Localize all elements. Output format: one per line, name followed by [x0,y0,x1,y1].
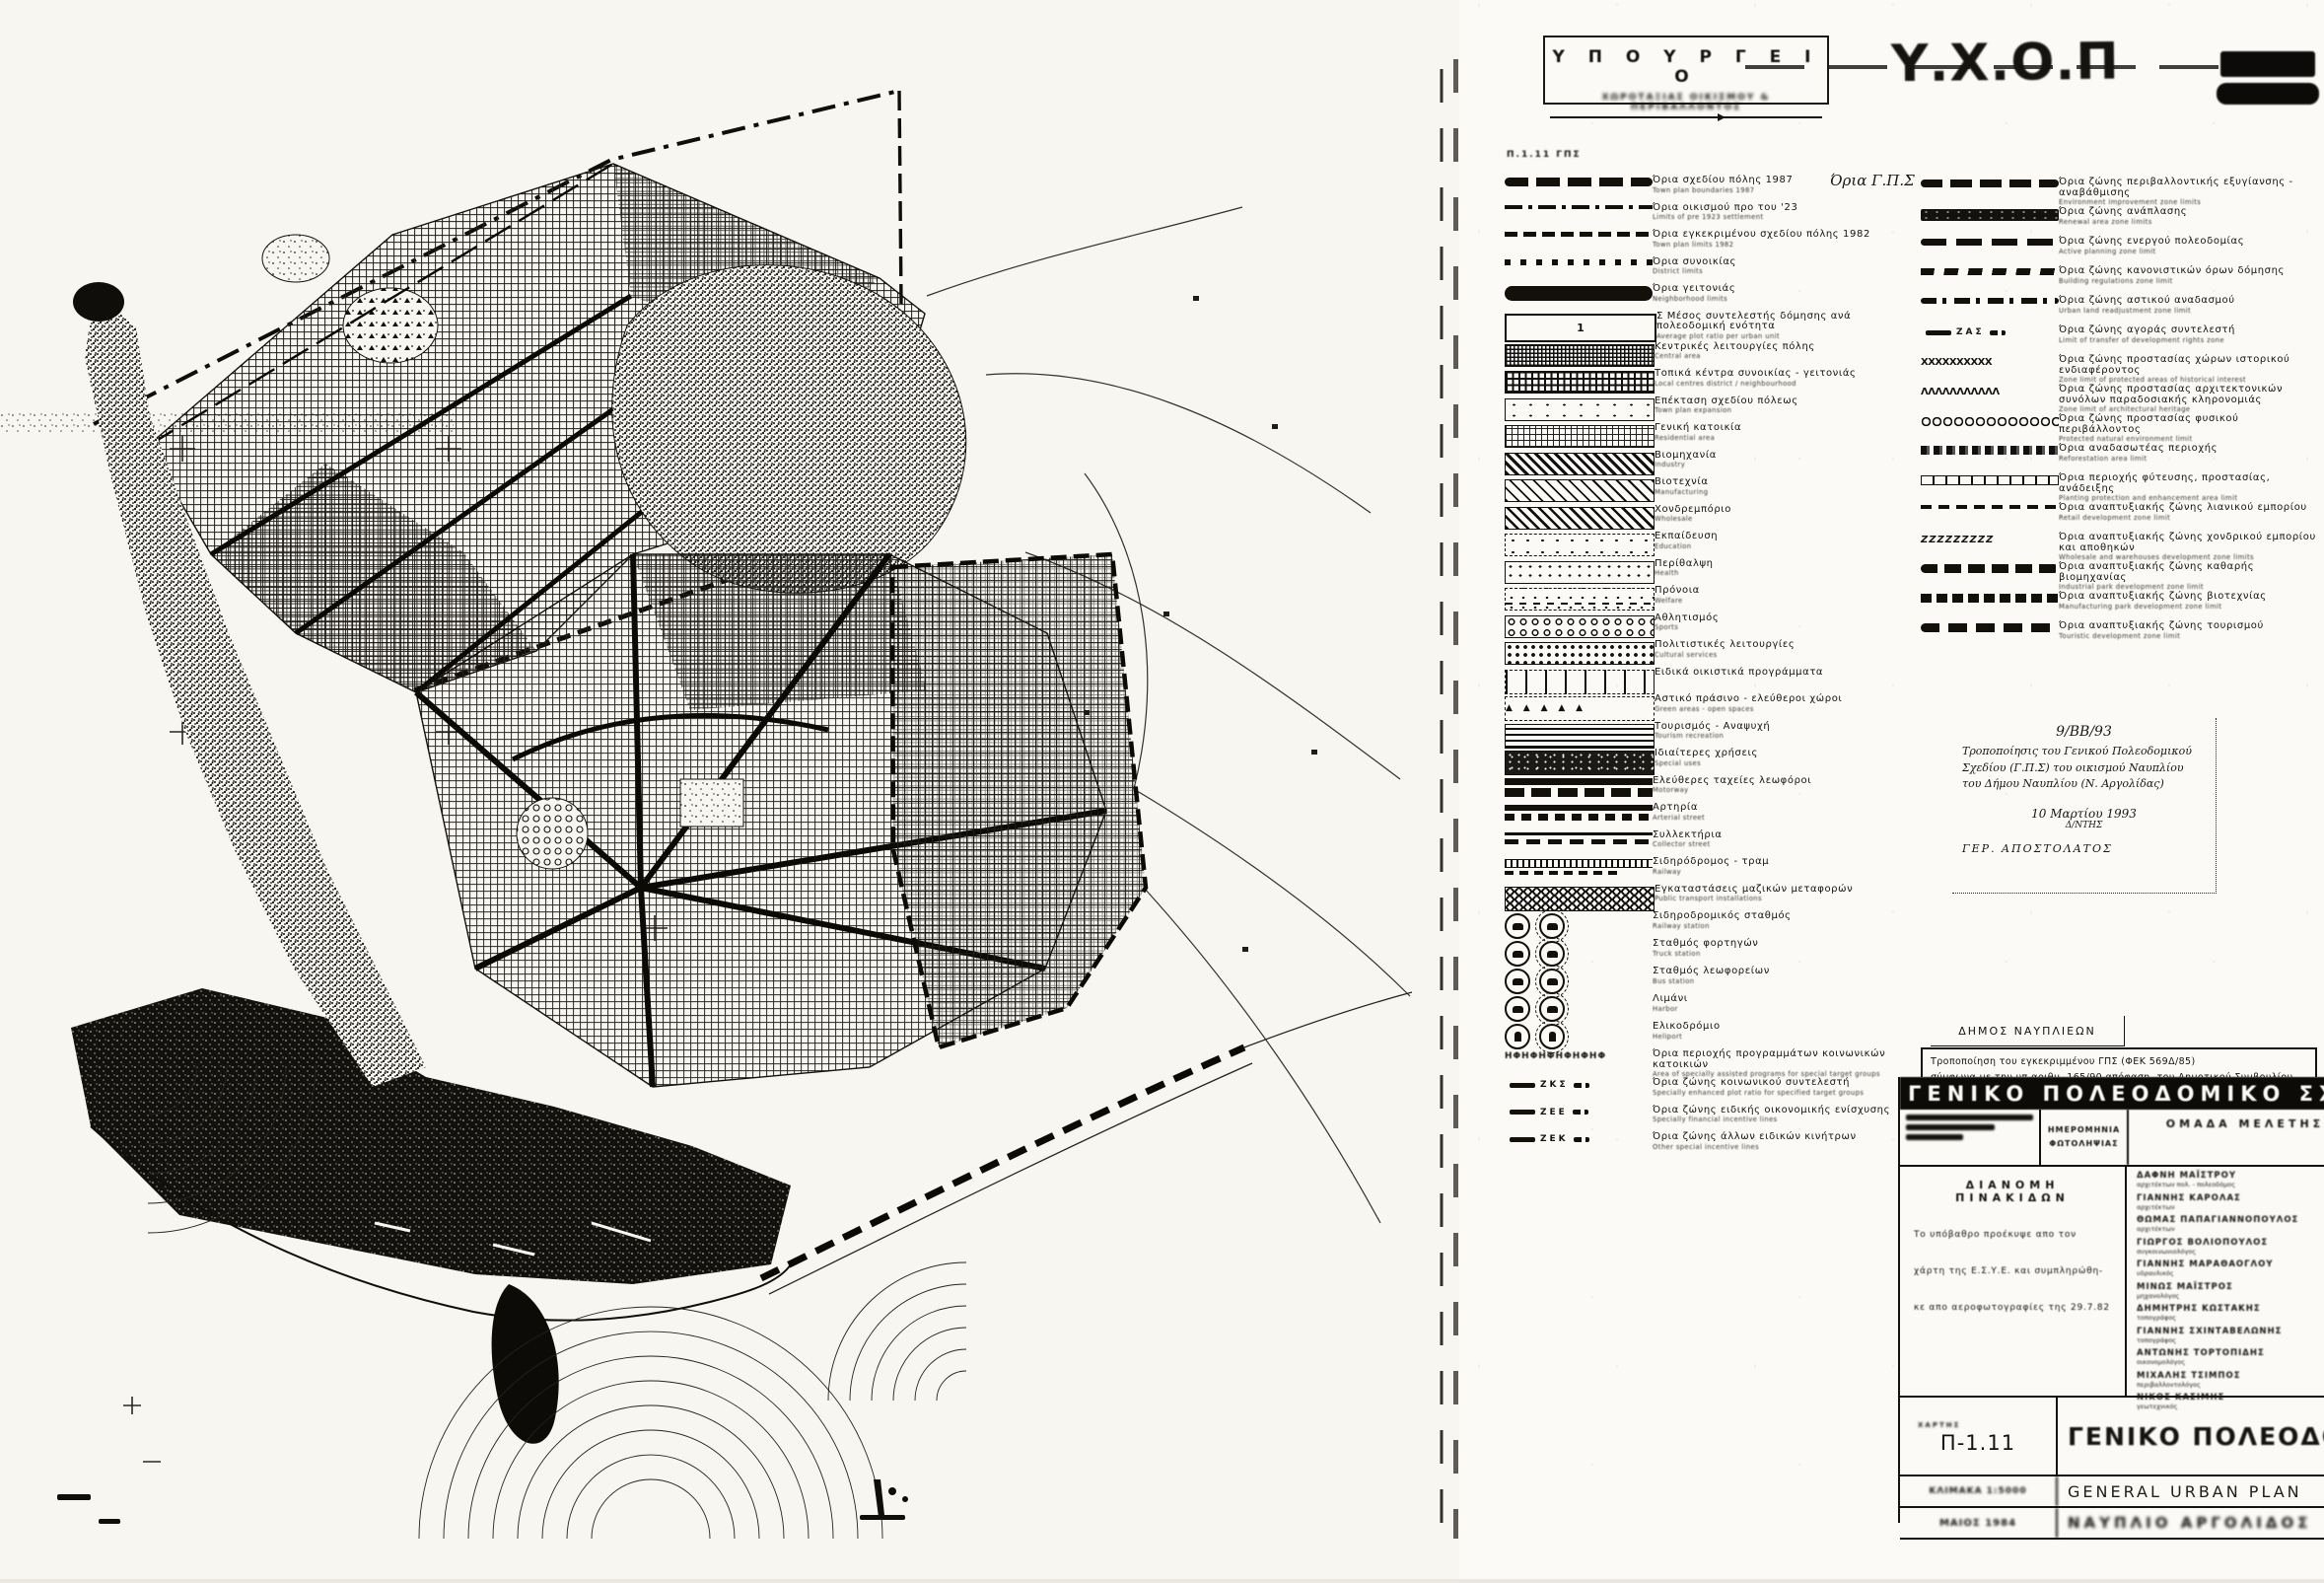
legend-item-health: Περίθαλψη Health [1505,559,1914,587]
legend-item-public-transport-installations: Εγκαταστάσεις μαζικών μεταφορών Public t… [1505,885,1914,912]
education-icon [1505,534,1655,556]
social-housing-area-icon: ΗΦΗΦΗΦΗΦΗΦΗΦ [1505,1051,1653,1061]
truck-station-icon [1505,941,1653,967]
legend-label-greek: Γενική κατοικία [1655,423,1914,434]
note-reference: 9/ΒΒ/93 [1962,724,2206,740]
legend-label-english: Manufacturing park development zone limi… [2059,604,2324,611]
legend-label-greek: Όρια ζώνης κανονιστικών όρων δόμησης [2059,266,2324,277]
legend-label-greek: Όρια ζώνης ανάπλασης [2059,207,2324,218]
legend-item-railway-line: Σιδηρόδρομος - τραμ Railway [1505,857,1914,885]
photo-date-header: ΗΜΕΡΟΜΗΝΙΑ ΦΩΤΟΛΗΨΙΑΣ [2041,1110,2129,1165]
industrial-park-zone-icon [1921,564,2059,573]
legend-label-greek: Σταθμός λεωφορείων [1653,967,1914,977]
legend-label-english: Harbor [1653,1006,1914,1013]
town-plan-limits-1982-icon [1505,232,1653,237]
team-member-name: ΑΝΤΩΝΗΣ ΤΟΡΤΟΠΙΔΗΣ [2137,1348,2324,1358]
legend-label-greek: Όρια γειτονιάς [1653,284,1914,295]
legend-label-english: Railway station [1653,923,1914,930]
legend-item-retail-development-zone: Όρια αναπτυξιακής ζώνης λιανικού εμπορίο… [1921,503,2324,533]
legend-label-english: Town plan expansion [1655,407,1914,414]
legend-label-greek: Όρια αναπτυξιακής ζώνης χονδρικού εμπορί… [2059,533,2324,553]
railway-line-icon [1505,859,1653,875]
renewal-zone-icon [1921,209,2059,221]
team-member-name: ΓΙΑΝΝΗΣ ΣΧΙΝΤΑΒΕΛΩΝΗΣ [2137,1327,2324,1336]
scan-smudges [57,1479,908,1524]
bus-station-icon [1505,969,1653,994]
collector-street-icon [1505,832,1653,844]
legend-item-railway-station: Σιδηροδρομικός σταθμός Railway station [1505,911,1914,939]
map-number-cell: ΧΑΡΤΗΣ Π-1.11 [1900,1398,2058,1475]
legend-item-collector-street: Συλλεκτήρια Collector street [1505,830,1914,858]
district-east [892,554,1146,1047]
team-member: ΔΗΜΗΤΡΗΣ ΚΩΣΤΑΚΗΣ τοπογράφος [2137,1304,2324,1322]
harbor-circle-icon [1505,996,1530,1022]
legend-sheet: Υ Π Ο Υ Ρ Γ Ε Ι Ο ΧΩΡΟΤΑΞΙΑΣ ΟΙΚΙΣΜΟΥ & … [1459,0,2324,1579]
legend-label-english: Residential area [1655,435,1914,442]
environmental-improvement-zone-icon [1921,180,2059,187]
legend-item-reforestation-area: Όρια αναδασωτέας περιοχής Reforestation … [1921,444,2324,473]
legend-label-english: Collector street [1653,841,1914,848]
legend-item-wholesale: Χονδρεμπόριο Wholesale [1505,505,1914,533]
cultural-services-icon [1505,642,1655,665]
sheet-fold-line [1453,59,1458,1539]
sports-icon [1505,615,1655,638]
legend-item-architectural-heritage-zone: ΛΛΛΛΛΛΛΛΛΛΛ Όρια ζώνης προστασίας αρχιτε… [1921,385,2324,414]
legend-item-tourism-recreation: Τουρισμός - Αναψυχή Tourism recreation [1505,722,1914,750]
heliport-circle-icon [1539,1024,1565,1049]
date-cell: ΜΑΙΟΣ 1984 [1900,1508,2058,1538]
legend-item-town-plan-boundaries-1987: Όρια σχεδίου πόλης 1987 Town plan bounda… [1505,176,1914,203]
heliport-icon [1505,1024,1653,1049]
legend-label-greek: Χονδρεμπόριο [1655,505,1914,516]
legend-label-english: Building regulations zone limit [2059,278,2324,285]
team-member-name: ΓΙΑΝΝΗΣ ΜΑΡΑΘΑΟΓΛΟΥ [2137,1259,2324,1269]
legend-column-right: Όρια ζώνης περιβαλλοντικής εξυγίανσης - … [1921,178,2324,651]
green-open-spaces-icon: ▲ ▲ ▲ ▲ ▲ [1505,696,1655,721]
distribution-title: ΔΙΑΝΟΜΗ ΠΙΝΑΚΙΔΩΝ [1914,1179,2111,1204]
title-band: ΓΕΝΙΚΟ ΠΟΛΕΟΔΟΜΙΚΟ ΣΧΕΔΙΟ [1900,1077,2324,1110]
railway-station-circle-icon [1539,913,1565,939]
municipality-label: ΔΗΜΟΣ ΝΑΥΠΛΙΕΩΝ [1931,1016,2125,1046]
heliport-circle-icon [1505,1024,1530,1049]
manufacturing-icon [1505,479,1655,502]
map-sheet [0,0,1459,1579]
neighborhood-limits-icon [1505,286,1653,301]
legend-label-greek: Πολιτιστικές λειτουργίες [1655,640,1914,651]
legend-label-greek: Σιδηροδρομικός σταθμός [1653,911,1914,922]
legend-label-greek: Ειδικά οικιστικά προγράμματα [1655,668,1914,679]
legend-item-renewal-zone: Όρια ζώνης ανάπλασης Renewal area zone l… [1921,207,2324,237]
basemap-info-cell-illegible [1900,1110,2041,1165]
team-member: ΓΙΑΝΝΗΣ ΚΑΡΟΛΑΣ αρχιτέκτων [2137,1193,2324,1211]
harbor-circle-icon [1539,996,1565,1022]
wholesale-warehouse-zone-icon: ΖΖΖΖΖΖΖΖΖ [1921,535,2059,545]
legend-item-bus-station: Σταθμός λεωφορείων Bus station [1505,967,1914,994]
legend-label-greek: Όρια περιοχής φύτευσης, προστασίας, ανάδ… [2059,473,2324,494]
legend-label-english: Limits of pre 1923 settlement [1653,214,1914,221]
legend-item-special-financial-zone: ΖΕΕ Όρια ζώνης ειδικής οικονομικής ενίσχ… [1505,1106,1914,1133]
legend-item-wholesale-warehouse-zone: ΖΖΖΖΖΖΖΖΖ Όρια αναπτυξιακής ζώνης χονδρι… [1921,533,2324,562]
team-member-role: αρχιτέκτων [2137,1225,2324,1233]
other-incentive-zone-icon: ΖΕΚ [1505,1134,1653,1144]
note-role: Δ/ΝΤΗΣ [1962,821,2206,830]
legend-label-greek: Όρια αναδασωτέας περιοχής [2059,444,2324,455]
legend-item-social-plot-ratio-zone: ΖΚΣ Όρια ζώνης κοινωνικού συντελεστή Spe… [1505,1078,1914,1106]
team-member: ΜΙΝΩΣ ΜΑΪΣΤΡΟΣ μηχανολόγος [2137,1282,2324,1300]
legend-label-greek: Όρια αναπτυξιακής ζώνης τουρισμού [2059,621,2324,632]
ministry-header-box: Υ Π Ο Υ Ρ Γ Ε Ι Ο ΧΩΡΟΤΑΞΙΑΣ ΟΙΚΙΣΜΟΥ & … [1543,36,1829,105]
legend-item-district-limits: Όρια συνοικίας District limits [1505,257,1914,285]
scanned-urban-plan-document: { "ministry_box": { "title": "Υ Π Ο Υ Ρ … [0,0,2324,1579]
legend-item-central-area: Κεντρικές λειτουργίες πόλης Central area [1505,342,1914,370]
central-area-icon [1505,344,1655,367]
legend-label-greek: Περίθαλψη [1655,559,1914,570]
legend-label-english: Other special incentive lines [1653,1144,1914,1151]
legend-label-greek: Σιδηρόδρομος - τραμ [1653,857,1914,868]
team-member-role: οικονομολόγος [2137,1358,2324,1366]
legend-label-greek: Σ Μέσος συντελεστής δόμησης ανά πολεοδομ… [1656,312,1914,332]
legend-item-other-incentive-zone: ΖΕΚ Όρια ζώνης άλλων ειδικών κινήτρων Ot… [1505,1132,1914,1160]
legend-label-greek: Όρια ζώνης αστικού αναδασμού [2059,296,2324,307]
team-member-role: μηχανολόγος [2137,1292,2324,1300]
legend-label-english: Heliport [1653,1034,1914,1041]
legend-label-greek: Όρια ζώνης άλλων ειδικών κινήτρων [1653,1132,1914,1143]
note-signature: ΓΕΡ. ΑΠΟΣΤΟΛΑΤΟΣ [1962,842,2206,855]
urban-land-readjustment-zone-icon [1921,298,2059,304]
legend-label-greek: Όρια εγκεκριμένου σχεδίου πόλης 1982 [1653,230,1914,241]
wholesale-icon [1505,507,1655,530]
team-member-role: συγκοινωνιολόγος [2137,1248,2324,1256]
legend-label-english: Green areas - open spaces [1655,706,1914,713]
team-member: ΘΩΜΑΣ ΠΑΠΑΓΙΑΝΝΟΠΟΥΛΟΣ αρχιτέκτων [2137,1215,2324,1233]
legend-item-pre-1923-settlement: Όρια οικισμού προ του '23 Limits of pre … [1505,203,1914,231]
legend-label-greek: Ελεύθερες ταχείες λεωφόροι [1653,776,1914,787]
legend-item-active-planning-zone: Όρια ζώνης ενεργού πολεοδομίας Active pl… [1921,237,2324,266]
study-team-list: ΔΑΦΝΗ ΜΑΪΣΤΡΟΥ αρχιτέκτων πολ. - πολεοδό… [2127,1167,2324,1396]
team-header: ΟΜΑΔΑ ΜΕΛΕΤΗΣ [2129,1110,2324,1165]
motorway-icon [1505,778,1653,797]
reforestation-area-icon [1921,446,2059,455]
legend-label-greek: Όρια αναπτυξιακής ζώνης καθαρής βιομηχαν… [2059,562,2324,583]
development-rights-zone-icon: ΖΑΣ [1921,327,2059,337]
distribution-line1: Το υπόβαθρο προέκυψε απο τον [1914,1230,2111,1241]
legend-item-town-plan-limits-1982: Όρια εγκεκριμένου σχεδίου πόλης 1982 Tow… [1505,230,1914,257]
town-plan-expansion-icon [1505,398,1655,421]
legend-item-sports: Αθλητισμός Sports [1505,613,1914,641]
legend-label-greek: Βιομηχανία [1655,451,1914,462]
place-name-cell: ΝΑΥΠΛΙΟ ΑΡΓΟΛΙΔΟΣ [2058,1508,2324,1538]
ministry-subtitle: ΧΩΡΟΤΑΞΙΑΣ ΟΙΚΙΣΜΟΥ & ΠΕΡΙΒΑΛΛΟΝΤΟΣ [1545,93,1827,112]
tourism-recreation-icon [1505,724,1655,749]
handwritten-amendment-note: 9/ΒΒ/93 Τροποποίησις του Γενικού Πολεοδο… [1952,718,2217,894]
railway-station-icon [1505,913,1653,939]
legend-label-greek: Όρια ζώνης προστασίας φυσικού περιβάλλον… [2059,414,2324,435]
team-member-name: ΓΙΩΡΓΟΣ ΒΟΛΙΟΠΟΥΛΟΣ [2137,1238,2324,1248]
truck-station-circle-icon [1539,941,1565,967]
legend-label-english: Tourism recreation [1655,733,1914,740]
average-plot-ratio-icon: 1 [1505,314,1656,342]
legend-item-special-housing-programs: Ειδικά οικιστικά προγράμματα [1505,668,1914,695]
harbor-icon [1505,996,1653,1022]
legend-label-greek: Σταθμός φορτηγών [1653,939,1914,950]
legend-item-planting-protection-area: Όρια περιοχής φύτευσης, προστασίας, ανάδ… [1921,473,2324,503]
legend-label-english: Bus station [1653,978,1914,985]
health-icon [1505,561,1655,584]
railway-station-circle-icon [1505,913,1530,939]
team-member: ΓΙΑΝΝΗΣ ΣΧΙΝΤΑΒΕΛΩΝΗΣ τοπογράφος [2137,1327,2324,1344]
legend-label-english: Motorway [1653,787,1914,794]
legend-label-greek: Τοπικά κέντρα συνοικίας - γειτονιάς [1655,369,1914,380]
legend-label-english: Arterial street [1653,815,1914,822]
legend-item-green-open-spaces: ▲ ▲ ▲ ▲ ▲ Αστικό πράσινο - ελεύθεροι χώρ… [1505,694,1914,722]
retail-development-zone-icon [1921,505,2059,509]
legend-label-english: Neighborhood limits [1653,296,1914,303]
legend-label-greek: Όρια οικισμού προ του '23 [1653,203,1914,214]
architectural-heritage-zone-icon: ΛΛΛΛΛΛΛΛΛΛΛ [1921,387,2059,397]
building-regulation-zone-icon [1921,268,2059,275]
legend-label-english: Manufacturing [1655,489,1914,496]
town-plan-boundaries-1987-icon [1505,178,1653,186]
team-member-name: ΓΙΑΝΝΗΣ ΚΑΡΟΛΑΣ [2137,1193,2324,1203]
legend-item-industrial-park-zone: Όρια αναπτυξιακής ζώνης καθαρής βιομηχαν… [1921,562,2324,592]
legend-item-special-uses: Ιδιαίτερες χρήσεις Special uses [1505,749,1914,776]
legend-item-industry: Βιομηχανία Industry [1505,451,1914,478]
amendment-line1: Τροποποίηση του εγκεκριμμένου ΓΠΣ (ΦΕΚ 5… [1931,1054,2307,1070]
legend-item-harbor: Λιμάνι Harbor [1505,994,1914,1022]
social-plot-ratio-zone-icon: ΖΚΣ [1505,1080,1653,1090]
legend-item-arterial-street: Αρτηρία Arterial street [1505,803,1914,830]
distribution-line2: χάρτη της Ε.Σ.Υ.Ε. και συμπληρώθη- [1914,1266,2111,1277]
manufacturing-park-zone-icon [1921,594,2059,603]
plan-title-english: GENERAL URBAN PLAN [2058,1476,2324,1506]
historical-interest-zone-icon: ΧΧΧΧΧΧΧΧΧΧ [1921,357,2059,368]
distribution-cell: ΔΙΑΝΟΜΗ ΠΙΝΑΚΙΔΩΝ Το υπόβαθρο προέκυψε α… [1900,1167,2127,1396]
legend-label-greek: Αθλητισμός [1655,613,1914,624]
legend-label-greek: Όρια ζώνης προστασίας αρχιτεκτονικών συν… [2059,385,2324,405]
legend-item-town-plan-expansion: Επέκταση σχεδίου πόλεως Town plan expans… [1505,396,1914,424]
team-member: ΑΝΤΩΝΗΣ ΤΟΡΤΟΠΙΔΗΣ οικονομολόγος [2137,1348,2324,1366]
legend-item-historical-interest-zone: ΧΧΧΧΧΧΧΧΧΧ Όρια ζώνης προστασίας χώρων ι… [1921,355,2324,385]
lagoon-pond [492,1284,559,1444]
natural-environment-zone-icon [1921,416,2059,427]
residential-area-icon [1505,425,1655,448]
legend-label-english: Local centres district / neighbourhood [1655,381,1914,388]
plan-title-greek: ΓΕΝΙΚΟ ΠΟΛΕΟΔΟΜΙΚΟ ΣΧΕΔΙΟ [2058,1398,2324,1475]
district-limits-icon [1505,259,1653,265]
legend-item-education: Εκπαίδευση Education [1505,532,1914,559]
team-member-name: ΘΩΜΑΣ ΠΑΠΑΓΙΑΝΝΟΠΟΥΛΟΣ [2137,1215,2324,1225]
legend-label-english: Special uses [1655,760,1914,767]
legend-item-natural-environment-zone: Όρια ζώνης προστασίας φυσικού περιβάλλον… [1921,414,2324,444]
special-financial-zone-icon: ΖΕΕ [1505,1108,1653,1117]
legend-label-greek: Κεντρικές λειτουργίες πόλης [1655,342,1914,353]
legend-item-building-regulation-zone: Όρια ζώνης κανονιστικών όρων δόμησης Bui… [1921,266,2324,296]
bus-station-circle-icon [1539,969,1565,994]
note-body: Τροποποίησις του Γενικού Πολεοδομικού Σχ… [1962,744,2206,793]
handwritten-annotation: Όρια Γ.Π.Σ [1830,172,1915,189]
legend-label-greek: Αρτηρία [1653,803,1914,814]
legend-item-urban-land-readjustment-zone: Όρια ζώνης αστικού αναδασμού Urban land … [1921,296,2324,325]
industry-icon [1505,453,1655,475]
scale-cell: ΚΛΙΜΑΚΑ 1:5000 [1900,1476,2058,1506]
arrow-divider [1550,116,1822,118]
team-member-name: ΔΗΜΗΤΡΗΣ ΚΩΣΤΑΚΗΣ [2137,1304,2324,1314]
legend-item-social-housing-area: ΗΦΗΦΗΦΗΦΗΦΗΦ Όρια περιοχής προγραμμάτων … [1505,1049,1914,1078]
legend-label-english: Industry [1655,462,1914,468]
welfare-icon [1505,588,1655,611]
truck-station-circle-icon [1505,941,1530,967]
legend-label-greek: Πρόνοια [1655,586,1914,597]
legend-label-english: Renewal area zone limits [2059,219,2324,226]
legend-label-english: Specially enhanced plot ratio for specif… [1653,1090,1914,1097]
legend-label-greek: Όρια ζώνης ειδικής οικονομικής ενίσχυσης [1653,1106,1914,1116]
team-member-role: υδραυλικός [2137,1269,2324,1277]
legend-item-local-centres: Τοπικά κέντρα συνοικίας - γειτονιάς Loca… [1505,369,1914,396]
legend-label-greek: Όρια ζώνης αγοράς συντελεστή [2059,325,2324,336]
legend-item-manufacturing: Βιοτεχνία Manufacturing [1505,477,1914,505]
team-member: ΓΙΩΡΓΟΣ ΒΟΛΙΟΠΟΥΛΟΣ συγκοινωνιολόγος [2137,1238,2324,1256]
team-member: ΜΙΧΑΛΗΣ ΤΣΙΜΠΟΣ περιβαλλοντολόγος [2137,1371,2324,1389]
legend-label-greek: Λιμάνι [1653,994,1914,1005]
legend-label-english: Health [1655,570,1914,577]
legend-label-greek: Όρια αναπτυξιακής ζώνης βιοτεχνίας [2059,592,2324,603]
team-member-name: ΔΑΦΝΗ ΜΑΪΣΤΡΟΥ [2137,1171,2324,1181]
team-member-role: αρχιτέκτων πολ. - πολεοδόμος [2137,1181,2324,1188]
legend-label-greek: Αστικό πράσινο - ελεύθεροι χώροι [1655,694,1914,705]
legend-label-greek: Εγκαταστάσεις μαζικών μεταφορών [1655,885,1914,896]
legend-label-english: District limits [1653,268,1914,275]
legend-label-english: Touristic development zone limit [2059,633,2324,640]
legend-item-tourist-development-zone: Όρια αναπτυξιακής ζώνης τουρισμού Touris… [1921,621,2324,651]
pre-1923-settlement-icon [1505,205,1653,209]
legend-label-english: Sports [1655,624,1914,631]
legend-label-greek: Όρια συνοικίας [1653,257,1914,268]
legend-label-greek: Όρια αναπτυξιακής ζώνης λιανικού εμπορίο… [2059,503,2324,514]
ministry-title: Υ Π Ο Υ Ρ Γ Ε Ι Ο [1545,47,1827,87]
note-date: 10 Μαρτίου 1993 [1962,807,2206,821]
legend-label-greek: Όρια ζώνης προστασίας χώρων ιστορικού εν… [2059,355,2324,376]
legend-label-greek: Βιοτεχνία [1655,477,1914,488]
legend-label-english: Education [1655,543,1914,550]
legend-label-greek: Όρια ζώνης ενεργού πολεοδομίας [2059,237,2324,248]
legend-column-left: Όρια σχεδίου πόλης 1987 Town plan bounda… [1505,176,1914,1160]
tourist-development-zone-icon [1921,623,2059,632]
legend-label-english: Central area [1655,353,1914,360]
legend-item-cultural-services: Πολιτιστικές λειτουργίες Cultural servic… [1505,640,1914,668]
illegible-text-bar [1906,1124,1995,1130]
title-block: ΓΕΝΙΚΟ ΠΟΛΕΟΔΟΜΙΚΟ ΣΧΕΔΙΟ ΗΜΕΡΟΜΗΝΙΑ ΦΩΤ… [1898,1077,2324,1523]
team-member-name: ΜΙΧΑΛΗΣ ΤΣΙΜΠΟΣ [2137,1371,2324,1381]
map-label: ΧΑΡΤΗΣ [1918,1421,1960,1429]
legend-label-greek: Ιδιαίτερες χρήσεις [1655,749,1914,759]
public-transport-installations-icon [1505,887,1655,911]
legend-label-english: Specially financial incentive lines [1653,1116,1914,1123]
legend-item-motorway: Ελεύθερες ταχείες λεωφόροι Motorway [1505,776,1914,804]
legend-label-english: Retail development zone limit [2059,515,2324,522]
legend-label-english: Urban land readjustment zone limit [2059,308,2324,315]
legend-item-manufacturing-park-zone: Όρια αναπτυξιακής ζώνης βιοτεχνίας Manuf… [1921,592,2324,621]
team-member-role: αρχιτέκτων [2137,1203,2324,1211]
legend-label-greek: Εκπαίδευση [1655,532,1914,542]
legend-item-development-rights-zone: ΖΑΣ Όρια ζώνης αγοράς συντελεστή Limit o… [1921,325,2324,355]
agency-logo: Υ.Χ.Ο.Π [1891,33,2120,94]
legend-label-greek: Όρια περιοχής προγραμμάτων κοινωνικών κα… [1653,1049,1914,1070]
team-member-role: τοπογράφος [2137,1336,2324,1344]
legend-item-heliport: Ελικοδρόμιο Heliport [1505,1022,1914,1049]
legend-label-english: Public transport installations [1655,896,1914,902]
legend-label-english: Wholesale [1655,516,1914,523]
legend-item-average-plot-ratio: 1 Σ Μέσος συντελεστής δόμησης ανά πολεοδ… [1505,312,1914,342]
illegible-text-bar [1906,1115,2033,1120]
legend-label-english: Welfare [1655,598,1914,605]
team-member: ΔΑΦΝΗ ΜΑΪΣΤΡΟΥ αρχιτέκτων πολ. - πολεοδό… [2137,1171,2324,1188]
city-map-canvas [0,0,1459,1579]
team-member-name: ΜΙΝΩΣ ΜΑΪΣΤΡΟΣ [2137,1282,2324,1292]
legend-label-english: Truck station [1653,951,1914,958]
legend-label-greek: Ελικοδρόμιο [1653,1022,1914,1033]
legend-label-greek: Όρια ζώνης περιβαλλοντικής εξυγίανσης - … [2059,178,2324,198]
bus-station-circle-icon [1505,969,1530,994]
active-planning-zone-icon [1921,239,2059,246]
legend-label-english: Reforestation area limit [2059,456,2324,463]
special-housing-programs-icon [1505,670,1655,694]
legend-label-english: Limit of transfer of development rights … [2059,337,2324,344]
stamp-mark [2220,51,2315,77]
team-member: ΓΙΑΝΝΗΣ ΜΑΡΑΘΑΟΓΛΟΥ υδραυλικός [2137,1259,2324,1277]
legend-item-residential-area: Γενική κατοικία Residential area [1505,423,1914,451]
illegible-text-bar [1906,1134,1963,1140]
legend-label-english: Active planning zone limit [2059,249,2324,255]
map-number: Π-1.11 [1940,1431,2015,1455]
team-member-role: τοπογράφος [2137,1314,2324,1322]
legend-label-greek: Τουρισμός - Αναψυχή [1655,722,1914,733]
legend-item-neighborhood-limits: Όρια γειτονιάς Neighborhood limits [1505,284,1914,312]
local-centres-icon [1505,371,1655,394]
legend-label-greek: Συλλεκτήρια [1653,830,1914,841]
legend-label-english: Town plan limits 1982 [1653,242,1914,249]
distribution-line3: κε απο αεροφωτογραφίες της 29.7.82 [1914,1303,2111,1314]
legend-label-greek: Επέκταση σχεδίου πόλεως [1655,396,1914,407]
team-member-role: περιβαλλοντολόγος [2137,1381,2324,1389]
legend-label-english: Railway [1653,869,1914,876]
legend-item-environmental-improvement-zone: Όρια ζώνης περιβαλλοντικής εξυγίανσης - … [1921,178,2324,207]
sheet-reference-code: Π.1.11 ΓΠΣ [1507,150,1582,160]
arterial-street-icon [1505,805,1653,821]
stamp-mark [2217,83,2319,105]
legend-label-english: Cultural services [1655,652,1914,659]
legend-label-english: Average plot ratio per urban unit [1656,333,1914,340]
legend-label-greek: Όρια ζώνης κοινωνικού συντελεστή [1653,1078,1914,1089]
special-uses-icon [1505,751,1655,775]
planting-protection-area-icon [1921,475,2059,485]
legend-item-welfare: Πρόνοια Welfare [1505,586,1914,613]
legend-item-truck-station: Σταθμός φορτηγών Truck station [1505,939,1914,967]
